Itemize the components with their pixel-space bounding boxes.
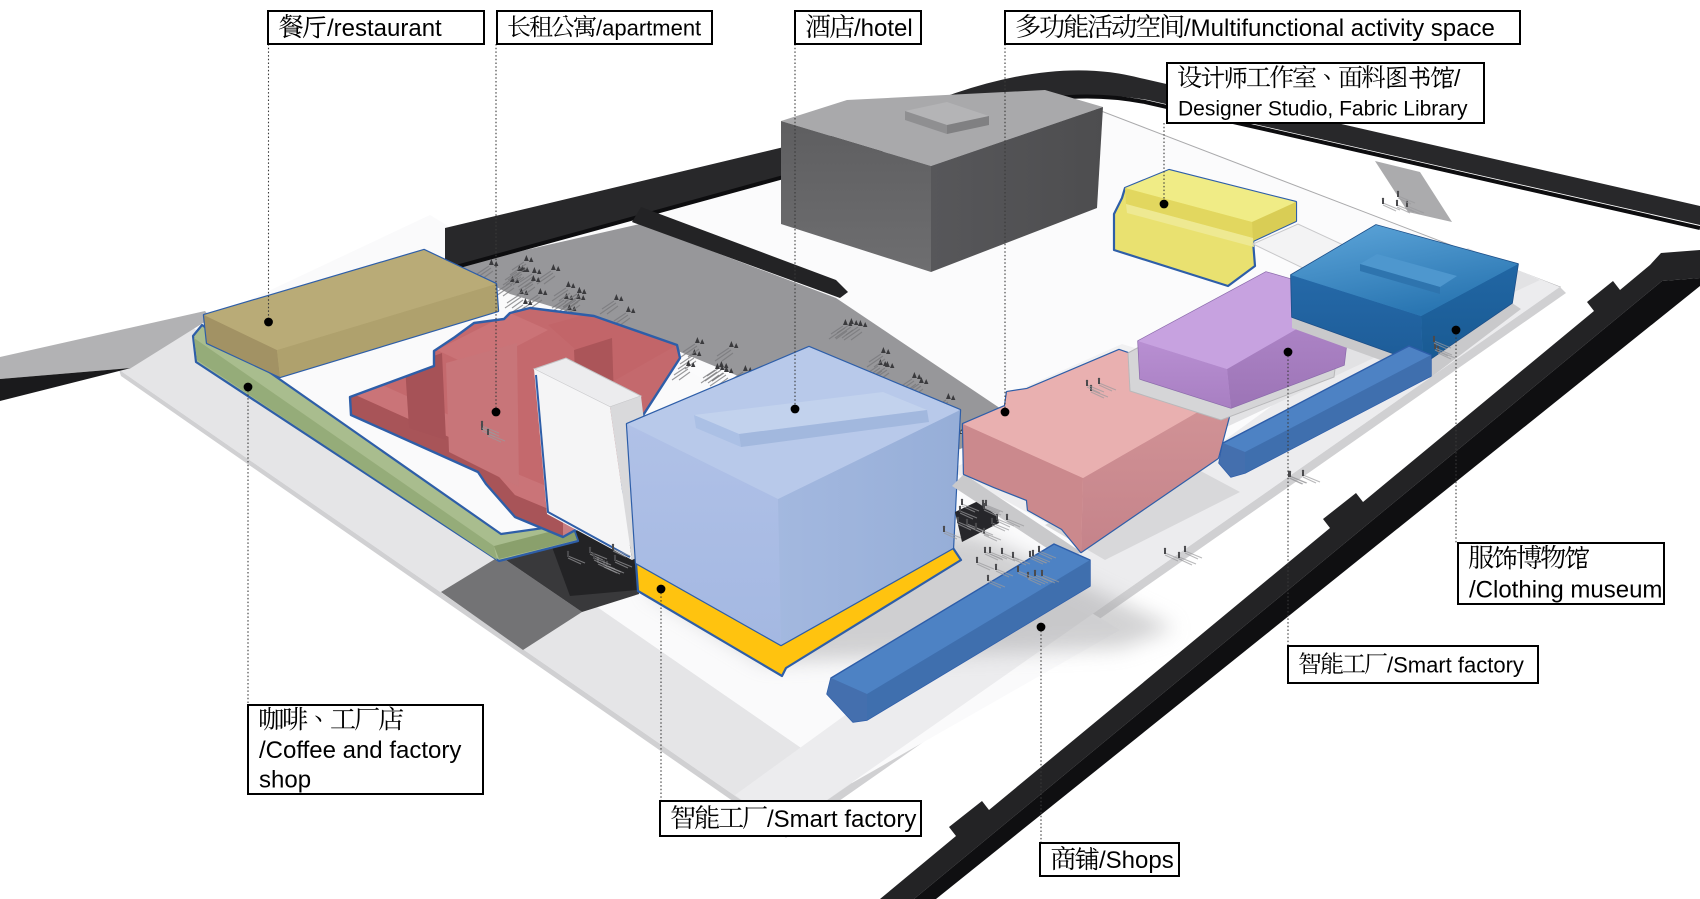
svg-text:/Smart factory: /Smart factory — [767, 806, 916, 833]
svg-text:/Shops: /Shops — [1099, 847, 1174, 874]
svg-text:/Coffee and factory: /Coffee and factory — [259, 737, 461, 764]
svg-text:/Clothing museum: /Clothing museum — [1469, 576, 1662, 603]
svg-text:shop: shop — [259, 767, 311, 794]
svg-text:/Multifunctional activity spac: /Multifunctional activity space — [1184, 15, 1495, 42]
svg-text:Designer Studio, Fabric Librar: Designer Studio, Fabric Library — [1178, 98, 1468, 121]
svg-text:/apartment: /apartment — [596, 15, 701, 40]
svg-text:/restaurant: /restaurant — [327, 15, 442, 42]
svg-text:/Smart factory: /Smart factory — [1387, 652, 1524, 677]
svg-text:/: / — [1454, 65, 1461, 91]
svg-text:/hotel: /hotel — [854, 15, 913, 42]
